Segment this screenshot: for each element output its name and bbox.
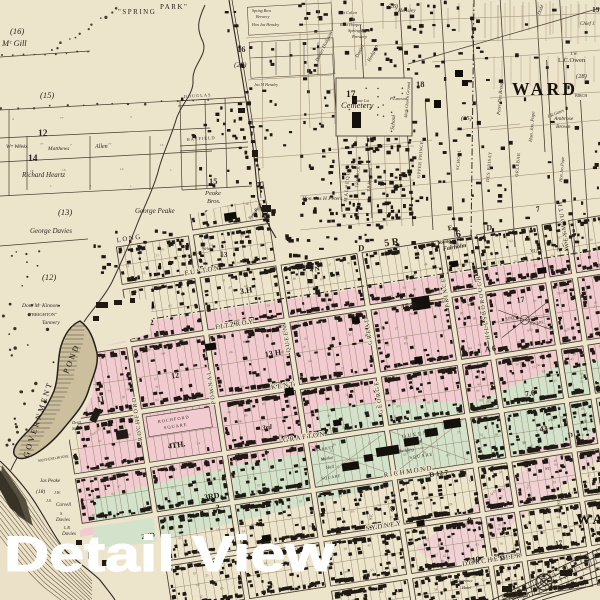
svg-text:Brown: Brown <box>556 124 571 130</box>
svg-text:(16): (16) <box>10 26 24 36</box>
svg-text:Wᵐ Weeks: Wᵐ Weeks <box>6 144 28 150</box>
svg-text:Brewery: Brewery <box>352 34 367 39</box>
svg-text:3: 3 <box>130 115 132 119</box>
svg-text:77: 77 <box>108 142 112 146</box>
svg-text:16: 16 <box>62 168 66 172</box>
svg-text:Matthews: Matthews <box>47 146 69 152</box>
svg-text:(13): (13) <box>58 207 72 217</box>
svg-text:7.6: 7.6 <box>524 388 535 398</box>
svg-text:43: 43 <box>539 424 548 434</box>
svg-text:(12): (12) <box>42 272 56 282</box>
svg-text:15: 15 <box>209 176 218 186</box>
svg-text:Welsh: Welsh <box>202 246 211 251</box>
svg-text:Tannery: Tannery <box>42 320 60 326</box>
svg-text:L.C.Owen: L.C.Owen <box>558 57 586 64</box>
svg-text:P.Lawson: P.Lawson <box>389 96 408 101</box>
svg-text:Spring Park: Spring Park <box>348 28 371 33</box>
svg-text:10: 10 <box>471 555 480 565</box>
svg-text:ST.: ST. <box>548 242 553 247</box>
svg-text:Robt Hooper: Robt Hooper <box>339 22 362 27</box>
svg-text:18: 18 <box>30 169 34 173</box>
svg-text:1: 1 <box>90 184 92 188</box>
svg-text:Hensley: Hensley <box>397 8 416 14</box>
svg-text:12: 12 <box>38 129 48 139</box>
svg-text:T.W.: T.W. <box>570 51 578 56</box>
svg-text:17: 17 <box>516 295 525 305</box>
svg-text:11: 11 <box>96 394 105 404</box>
svg-text:"BRIGHTON": "BRIGHTON" <box>30 312 57 317</box>
svg-text:7: 7 <box>70 143 72 147</box>
svg-text:Hon. Jas H Peters: Hon. Jas H Peters <box>301 196 342 202</box>
svg-text:5 R: 5 R <box>384 236 401 249</box>
svg-text:Bros.: Bros. <box>207 198 221 205</box>
svg-text:14: 14 <box>120 167 124 171</box>
svg-text:Donᵈ Mᶜ Kinnon: Donᵈ Mᶜ Kinnon <box>21 303 58 309</box>
svg-text:Stone Lot: Stone Lot <box>354 98 370 103</box>
svg-text:A 6: A 6 <box>484 344 497 355</box>
svg-text:13: 13 <box>220 250 228 259</box>
svg-text:19: 19 <box>592 5 600 14</box>
svg-text:PARK": PARK" <box>160 3 188 11</box>
svg-text:14: 14 <box>28 154 38 164</box>
svg-text:1: 1 <box>50 184 52 188</box>
svg-text:Hon Jas Hensley: Hon Jas Hensley <box>251 22 279 27</box>
svg-text:12: 12 <box>170 370 179 380</box>
svg-text:Brewery: Brewery <box>256 14 270 19</box>
svg-text:"SPRING: "SPRING <box>118 8 156 16</box>
svg-text:(25): (25) <box>461 115 472 122</box>
svg-text:16: 16 <box>18 143 22 147</box>
svg-text:Patt Cullen: Patt Cullen <box>337 10 357 15</box>
svg-text:1: 1 <box>130 184 132 188</box>
svg-text:VINE: VINE <box>530 248 544 253</box>
svg-text:Peake: Peake <box>204 190 221 197</box>
svg-text:Mᶜ Gill: Mᶜ Gill <box>1 38 27 48</box>
svg-text:77: 77 <box>60 116 64 120</box>
svg-text:18: 18 <box>416 79 425 89</box>
svg-text:George Davies: George Davies <box>30 227 72 235</box>
svg-text:4: 4 <box>12 117 14 121</box>
svg-text:WARD: WARD <box>512 79 578 99</box>
svg-text:(26): (26) <box>388 3 398 10</box>
svg-text:77: 77 <box>40 142 44 146</box>
svg-text:George Peake: George Peake <box>135 207 175 215</box>
svg-text:Ambrose: Ambrose <box>553 116 574 122</box>
svg-text:1: 1 <box>170 168 172 172</box>
svg-text:Spring Bros: Spring Bros <box>252 8 272 13</box>
svg-text:Allen: Allen <box>94 144 108 150</box>
svg-text:15: 15 <box>160 143 164 147</box>
svg-text:Richard Heartz: Richard Heartz <box>21 171 65 179</box>
svg-text:Chief J.: Chief J. <box>580 22 596 27</box>
svg-text:(15): (15) <box>40 90 54 100</box>
svg-text:WA: WA <box>576 512 600 528</box>
svg-text:3rd: 3rd <box>261 423 273 433</box>
svg-text:Jno M Hensley: Jno M Hensley <box>254 82 278 87</box>
